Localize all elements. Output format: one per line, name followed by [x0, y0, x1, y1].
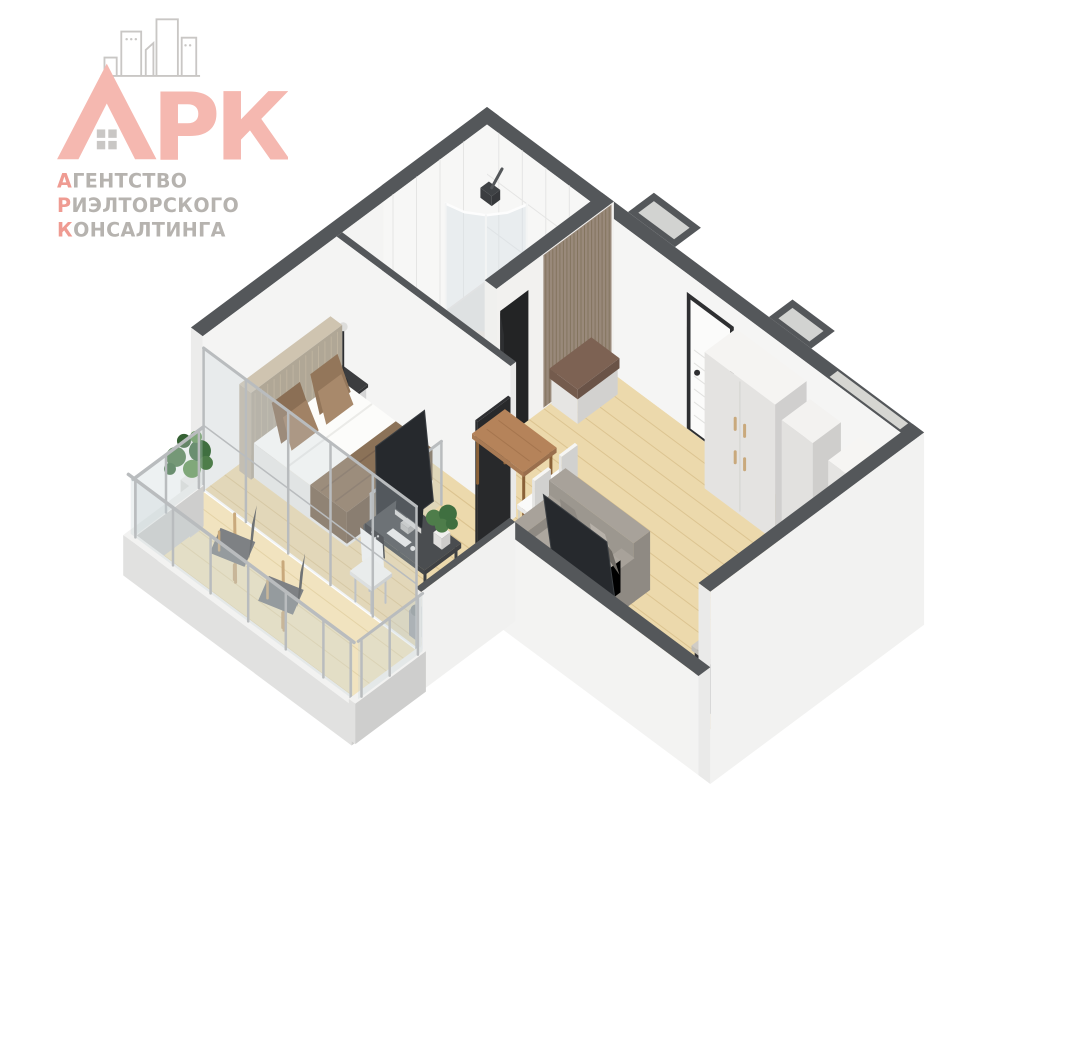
page: РК АГЕНТСТВО РИЭЛТОРСКОГО КОНСАЛТИНГА: [0, 0, 1080, 1048]
floorplan-3d-render: [0, 0, 1080, 1048]
